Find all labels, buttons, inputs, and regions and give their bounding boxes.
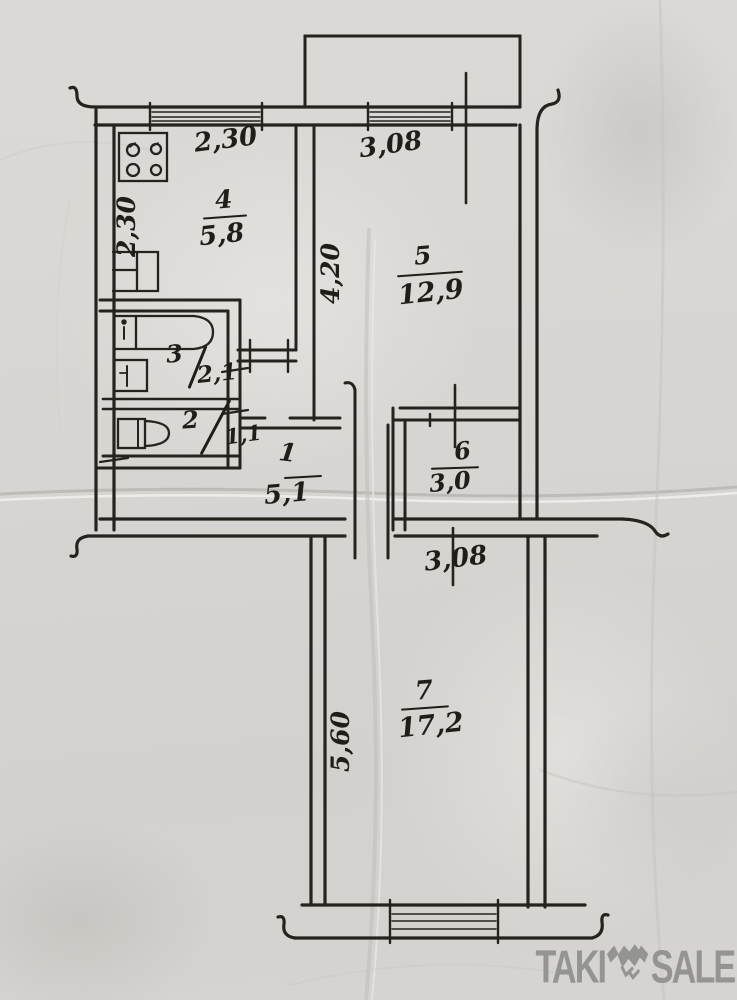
floor-plan-scan: 2,30 3,08 4 5,8 2,30 5 12,9 4,20 3 2,1 2… xyxy=(0,0,737,1000)
label-room7-area: 17,2 xyxy=(397,709,465,743)
label-room3-area: 2,1 xyxy=(196,360,238,387)
balcony-outline xyxy=(305,36,520,107)
label-room6-area: 3,0 xyxy=(428,468,472,496)
label-dim-kitchen-depth: 2,30 xyxy=(114,196,139,257)
label-room5-number: 5 xyxy=(413,242,433,268)
label-dim-room7-width: 3,08 xyxy=(423,542,489,576)
label-room2-area: 1,1 xyxy=(224,422,263,448)
label-room5-area: 12,9 xyxy=(397,276,465,310)
label-room3-number: 3 xyxy=(165,341,184,366)
label-room4-area: 5,8 xyxy=(198,220,246,251)
watermark-text-left: TAKI xyxy=(535,939,605,994)
label-room4-number: 4 xyxy=(214,186,234,212)
label-room1-number: 1 xyxy=(278,439,298,466)
label-dim-room7-depth: 5,60 xyxy=(328,711,353,772)
watermark-text-right: SALE xyxy=(650,939,734,994)
label-room1-area: 5,1 xyxy=(263,479,310,509)
label-room7-number: 7 xyxy=(414,677,434,704)
label-room6-number: 6 xyxy=(452,438,472,464)
label-room2-number: 2 xyxy=(181,407,199,432)
label-dim-room5-depth: 4,20 xyxy=(318,243,343,304)
label-dim-kitchen-window: 2,30 xyxy=(193,123,259,157)
handshake-icon xyxy=(607,938,649,994)
watermark: TAKI SALE xyxy=(535,938,734,994)
